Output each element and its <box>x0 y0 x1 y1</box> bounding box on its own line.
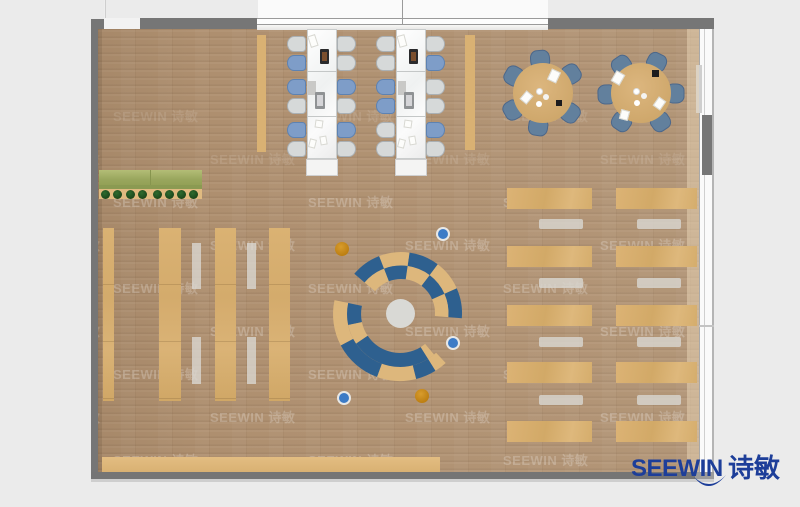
svg-text:SEEWIN: SEEWIN <box>631 455 723 482</box>
svg-text:诗敏: 诗敏 <box>728 453 780 483</box>
